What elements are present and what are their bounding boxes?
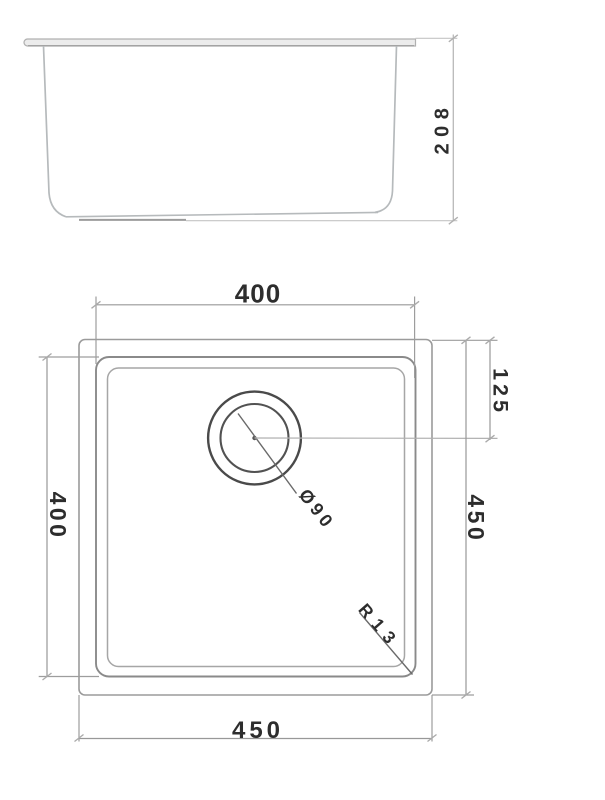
- svg-text:450: 450: [463, 494, 489, 543]
- svg-text:400: 400: [45, 492, 71, 541]
- svg-text:450: 450: [232, 717, 284, 744]
- svg-text:400: 400: [235, 279, 281, 309]
- svg-text:R13: R13: [354, 600, 404, 653]
- svg-text:125: 125: [489, 368, 513, 416]
- svg-text:Ø90: Ø90: [295, 485, 339, 534]
- svg-text:208: 208: [432, 102, 454, 155]
